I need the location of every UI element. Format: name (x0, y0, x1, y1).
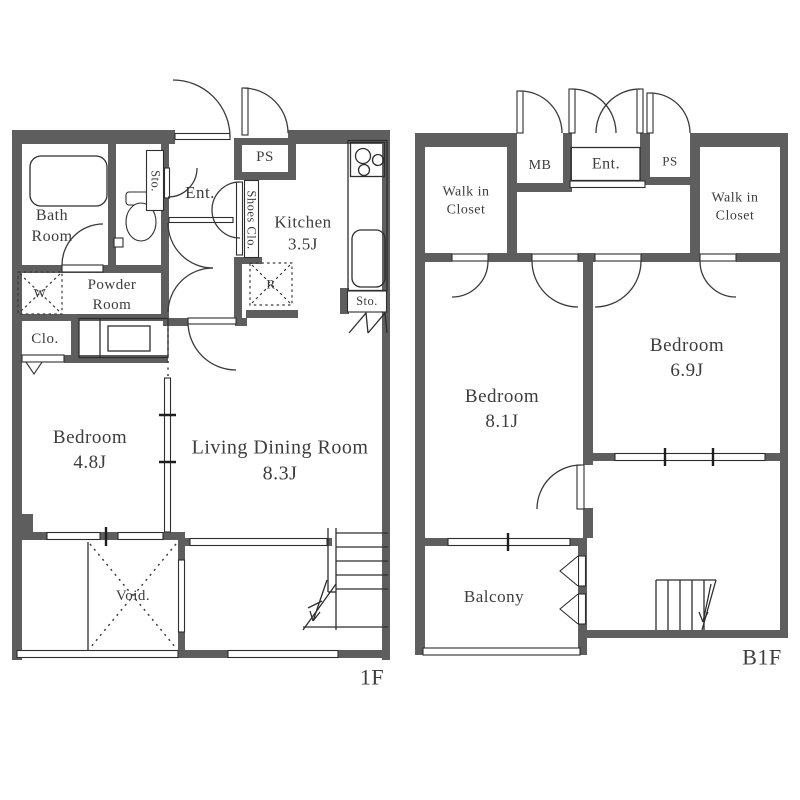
room-label-sto-kitchen: Sto. (356, 293, 378, 310)
room-label-kitchen: Kitchen 3.5J (274, 212, 331, 257)
room-label-wic-left: Walk in Closet (442, 184, 489, 221)
floor-plan-page: Bath Room Sto. Ent. Shoes Clo. PS Kitche… (0, 0, 800, 800)
room-label-mb: MB (529, 157, 552, 175)
room-label-refrigerator: R (266, 275, 275, 292)
room-label-bath: Bath Room (31, 205, 72, 247)
stairs-b1f (656, 580, 716, 630)
closet-opening-marker (22, 355, 64, 374)
room-label-sto-toilet: Sto. (147, 170, 164, 192)
room-label-entrance-1f: Ent. (185, 182, 215, 204)
room-label-bedroom-81: Bedroom 8.1J (465, 384, 539, 434)
vanity (79, 319, 168, 358)
room-label-entrance-b1f: Ent. (592, 153, 620, 174)
entrance-doors-b1f (517, 89, 690, 133)
room-label-wic-right: Walk in Closet (711, 190, 758, 227)
floor-label-b1f: B1F (742, 642, 781, 671)
kitchen-counter (348, 141, 387, 291)
room-label-bedroom-69: Bedroom 6.9J (650, 333, 724, 383)
room-label-ps-1f: PS (256, 148, 274, 168)
entry-step-line (169, 218, 233, 223)
bathtub (30, 156, 107, 206)
room-label-balcony: Balcony (464, 586, 524, 608)
room-label-void: Void. (116, 587, 150, 607)
room-label-washer: W (34, 284, 47, 301)
room-label-bedroom-48: Bedroom 4.8J (53, 425, 127, 475)
hall-doors-1f (168, 223, 236, 370)
windows-1f (17, 527, 338, 658)
plan-1f (12, 80, 390, 660)
entrance-doors-1f (173, 80, 288, 140)
room-label-closet-1f: Clo. (31, 330, 58, 350)
floor-label-1f: 1F (360, 662, 384, 691)
windows-b1f (423, 448, 765, 655)
room-label-ps-b1f: PS (662, 152, 677, 169)
room-label-powder-room: Powder Room (88, 276, 137, 316)
floor-plan-drawing (0, 0, 800, 800)
room-label-living-dining: Living Dining Room 8.3J (192, 435, 369, 488)
room-label-shoes-closet: Shoes Clo. (243, 190, 260, 249)
